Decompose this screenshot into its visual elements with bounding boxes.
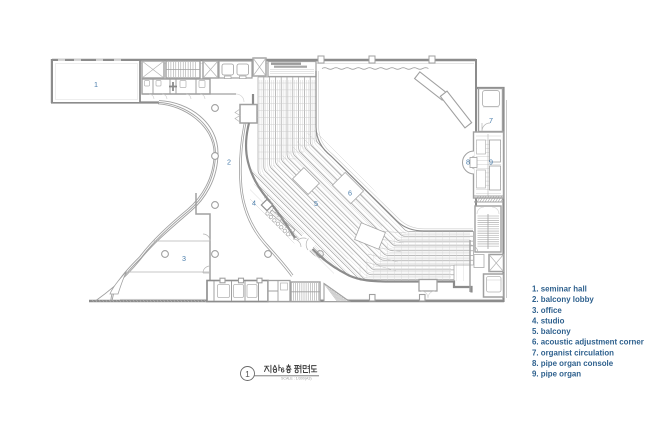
svg-text:1: 1 bbox=[245, 369, 250, 379]
svg-text:4: 4 bbox=[252, 199, 256, 208]
svg-text:SCALE : 1/300(A3): SCALE : 1/300(A3) bbox=[281, 376, 312, 380]
svg-text:5. balcony: 5. balcony bbox=[532, 327, 571, 336]
svg-text:3: 3 bbox=[182, 254, 186, 263]
svg-text:1: 1 bbox=[94, 80, 98, 89]
svg-text:4. studio: 4. studio bbox=[532, 316, 565, 325]
svg-text:2. balcony lobby: 2. balcony lobby bbox=[532, 295, 594, 304]
svg-text:6: 6 bbox=[348, 189, 352, 198]
svg-text:1. seminar hall: 1. seminar hall bbox=[532, 285, 587, 294]
svg-text:9: 9 bbox=[489, 158, 493, 167]
svg-text:3. office: 3. office bbox=[532, 306, 562, 315]
svg-text:6. acoustic adjustment corner: 6. acoustic adjustment corner bbox=[532, 338, 644, 347]
svg-text:5: 5 bbox=[314, 199, 318, 208]
svg-text:6: 6 bbox=[281, 365, 285, 374]
svg-text:8: 8 bbox=[466, 158, 470, 167]
svg-text:7: 7 bbox=[489, 116, 493, 125]
svg-text:7. organist circulation: 7. organist circulation bbox=[532, 348, 614, 357]
svg-text:8. pipe organ console: 8. pipe organ console bbox=[532, 359, 614, 368]
svg-text:2: 2 bbox=[227, 158, 231, 167]
svg-text:9. pipe organ: 9. pipe organ bbox=[532, 370, 581, 379]
